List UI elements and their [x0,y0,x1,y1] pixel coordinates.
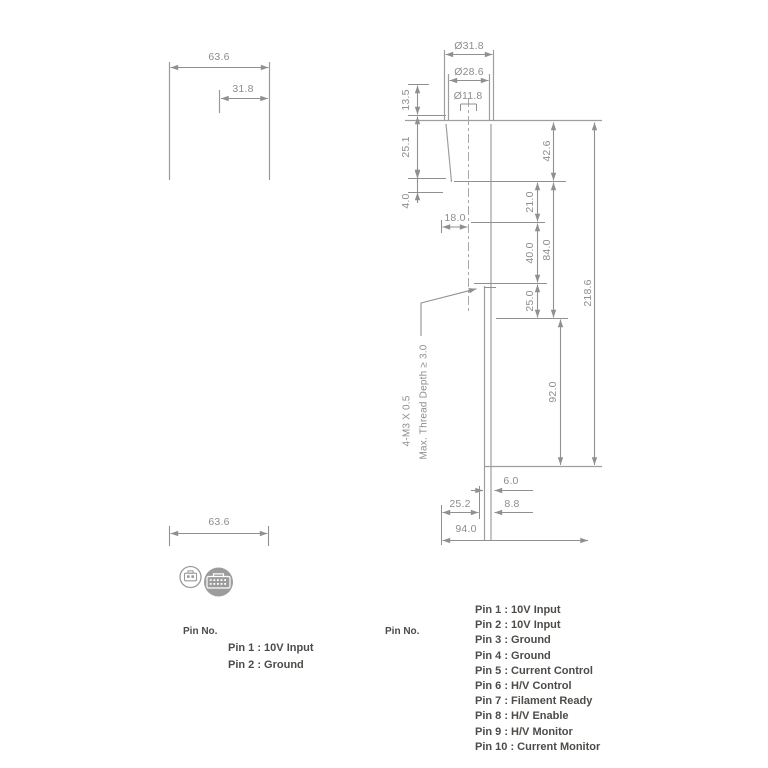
connector-10pin-icon [204,568,233,597]
front-view-outline [170,62,270,180]
dim-25-0: 25.0 [524,290,536,311]
dim-40-0: 40.0 [524,242,536,263]
dim-21-0: 21.0 [524,191,536,212]
dim-6-0: 6.0 [503,475,518,487]
pin-list-10pin: Pin 1 : 10V Input Pin 2 : 10V Input Pin … [475,603,600,755]
dim-218-6: 218.6 [582,279,594,306]
dim-4-0: 4.0 [400,193,412,208]
pin-list-item: Pin 3 : Ground [475,633,600,648]
dim-bottom-width: 63.6 [208,516,229,528]
pin-list-item: Pin 4 : Ground [475,649,600,664]
thread-note-line2: Max. Thread Depth ≥ 3.0 [419,345,430,460]
dim-92-0: 92.0 [547,381,559,402]
pin-list-item: Pin 8 : H/V Enable [475,709,600,724]
dim-front-half: 31.8 [232,83,253,95]
dim-dia-11-8: Ø11.8 [454,90,483,102]
dim-dia-31-8: Ø31.8 [454,40,484,52]
dim-8-8: 8.8 [504,498,519,510]
pin-list-item: Pin 10 : Current Monitor [475,740,600,755]
dim-front-width: 63.6 [208,51,229,63]
drawing-linework [0,0,768,768]
pin-list-2pin: Pin 1 : 10V Input Pin 2 : Ground [228,640,314,673]
pin-list-item: Pin 1 : 10V Input [475,603,600,618]
thread-note-line1: 4-M3 X 0.5 [402,396,413,447]
dim-13-5: 13.5 [400,89,412,110]
pin-list-item: Pin 5 : Current Control [475,664,600,679]
pin-list-item: Pin 7 : Filament Ready [475,694,600,709]
connector-2pin-icon [180,567,201,588]
dim-dia-28-6: Ø28.6 [454,66,484,78]
side-view-outline [405,50,602,540]
thread-note-leader [421,289,477,336]
pin-list-item: Pin 2 : 10V Input [475,618,600,633]
pin-list-item: Pin 1 : 10V Input [228,640,314,657]
pin-list-item: Pin 9 : H/V Monitor [475,725,600,740]
dim-94-0: 94.0 [455,523,476,535]
pin-list-item: Pin 2 : Ground [228,657,314,674]
dimension-drawing: 63.6 31.8 Ø31.8 Ø28.6 Ø11.8 13.5 25.1 4.… [0,0,768,768]
dim-25-1: 25.1 [400,136,412,157]
dim-84-0: 84.0 [541,239,553,260]
dim-25-2: 25.2 [449,498,470,510]
pin-no-label-left: Pin No. [183,626,217,637]
dim-42-6: 42.6 [541,140,553,161]
bottom-view-dimensions [170,526,269,546]
pin-list-item: Pin 6 : H/V Control [475,679,600,694]
pin-no-label-right: Pin No. [385,626,419,637]
dim-18-0: 18.0 [444,212,465,224]
